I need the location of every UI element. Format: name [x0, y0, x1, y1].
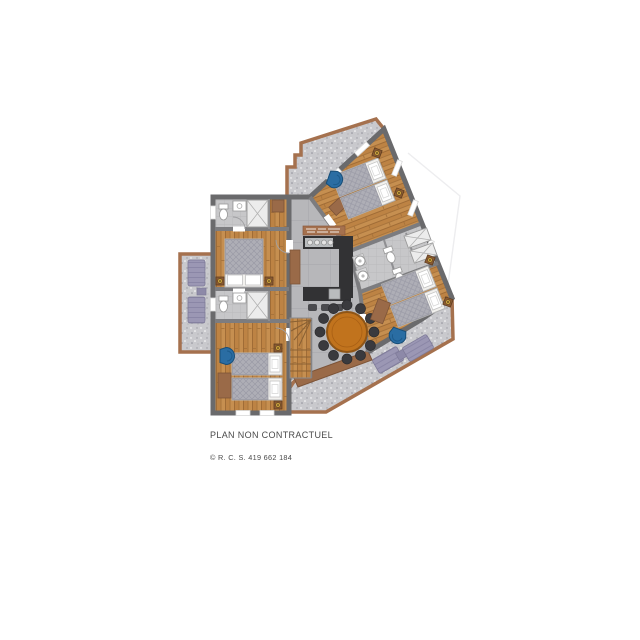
kitchen-label-strip [303, 226, 345, 235]
dresser [290, 250, 300, 284]
staircase [290, 318, 311, 378]
window [211, 298, 216, 311]
double-bed [225, 239, 263, 287]
copyright-notice: © R. C. S. 419 662 184 [210, 453, 292, 462]
plan-disclaimer: PLAN NON CONTRACTUEL [210, 430, 333, 440]
window [211, 206, 216, 219]
window [260, 411, 274, 416]
shower [247, 200, 268, 227]
bath-cabinet [272, 200, 284, 212]
shower [247, 292, 268, 319]
washbasin [233, 293, 246, 303]
kitchen-island [303, 287, 351, 301]
floorplan-page: PLAN NON CONTRACTUEL © R. C. S. 419 662 … [0, 0, 640, 640]
lounger [188, 297, 205, 323]
island-sink [329, 289, 340, 299]
nightstand [274, 344, 282, 352]
washbasin [233, 201, 246, 211]
single-bed [232, 378, 282, 400]
nightstand [265, 277, 273, 285]
toilet [219, 296, 228, 312]
nightstand [216, 277, 224, 285]
toilet [219, 204, 228, 220]
dining-table [327, 312, 367, 352]
single-bed [232, 353, 282, 375]
window [236, 411, 250, 416]
lounger [188, 260, 205, 286]
floor-plan: PLAN NON CONTRACTUEL © R. C. S. 419 662 … [0, 0, 640, 640]
armchair [220, 348, 235, 365]
lounger-side-table [197, 288, 206, 295]
door-gap [233, 227, 245, 232]
terrace-left [180, 254, 213, 352]
rug [218, 373, 231, 398]
nightstand [274, 401, 282, 409]
hall-floor [269, 291, 289, 321]
